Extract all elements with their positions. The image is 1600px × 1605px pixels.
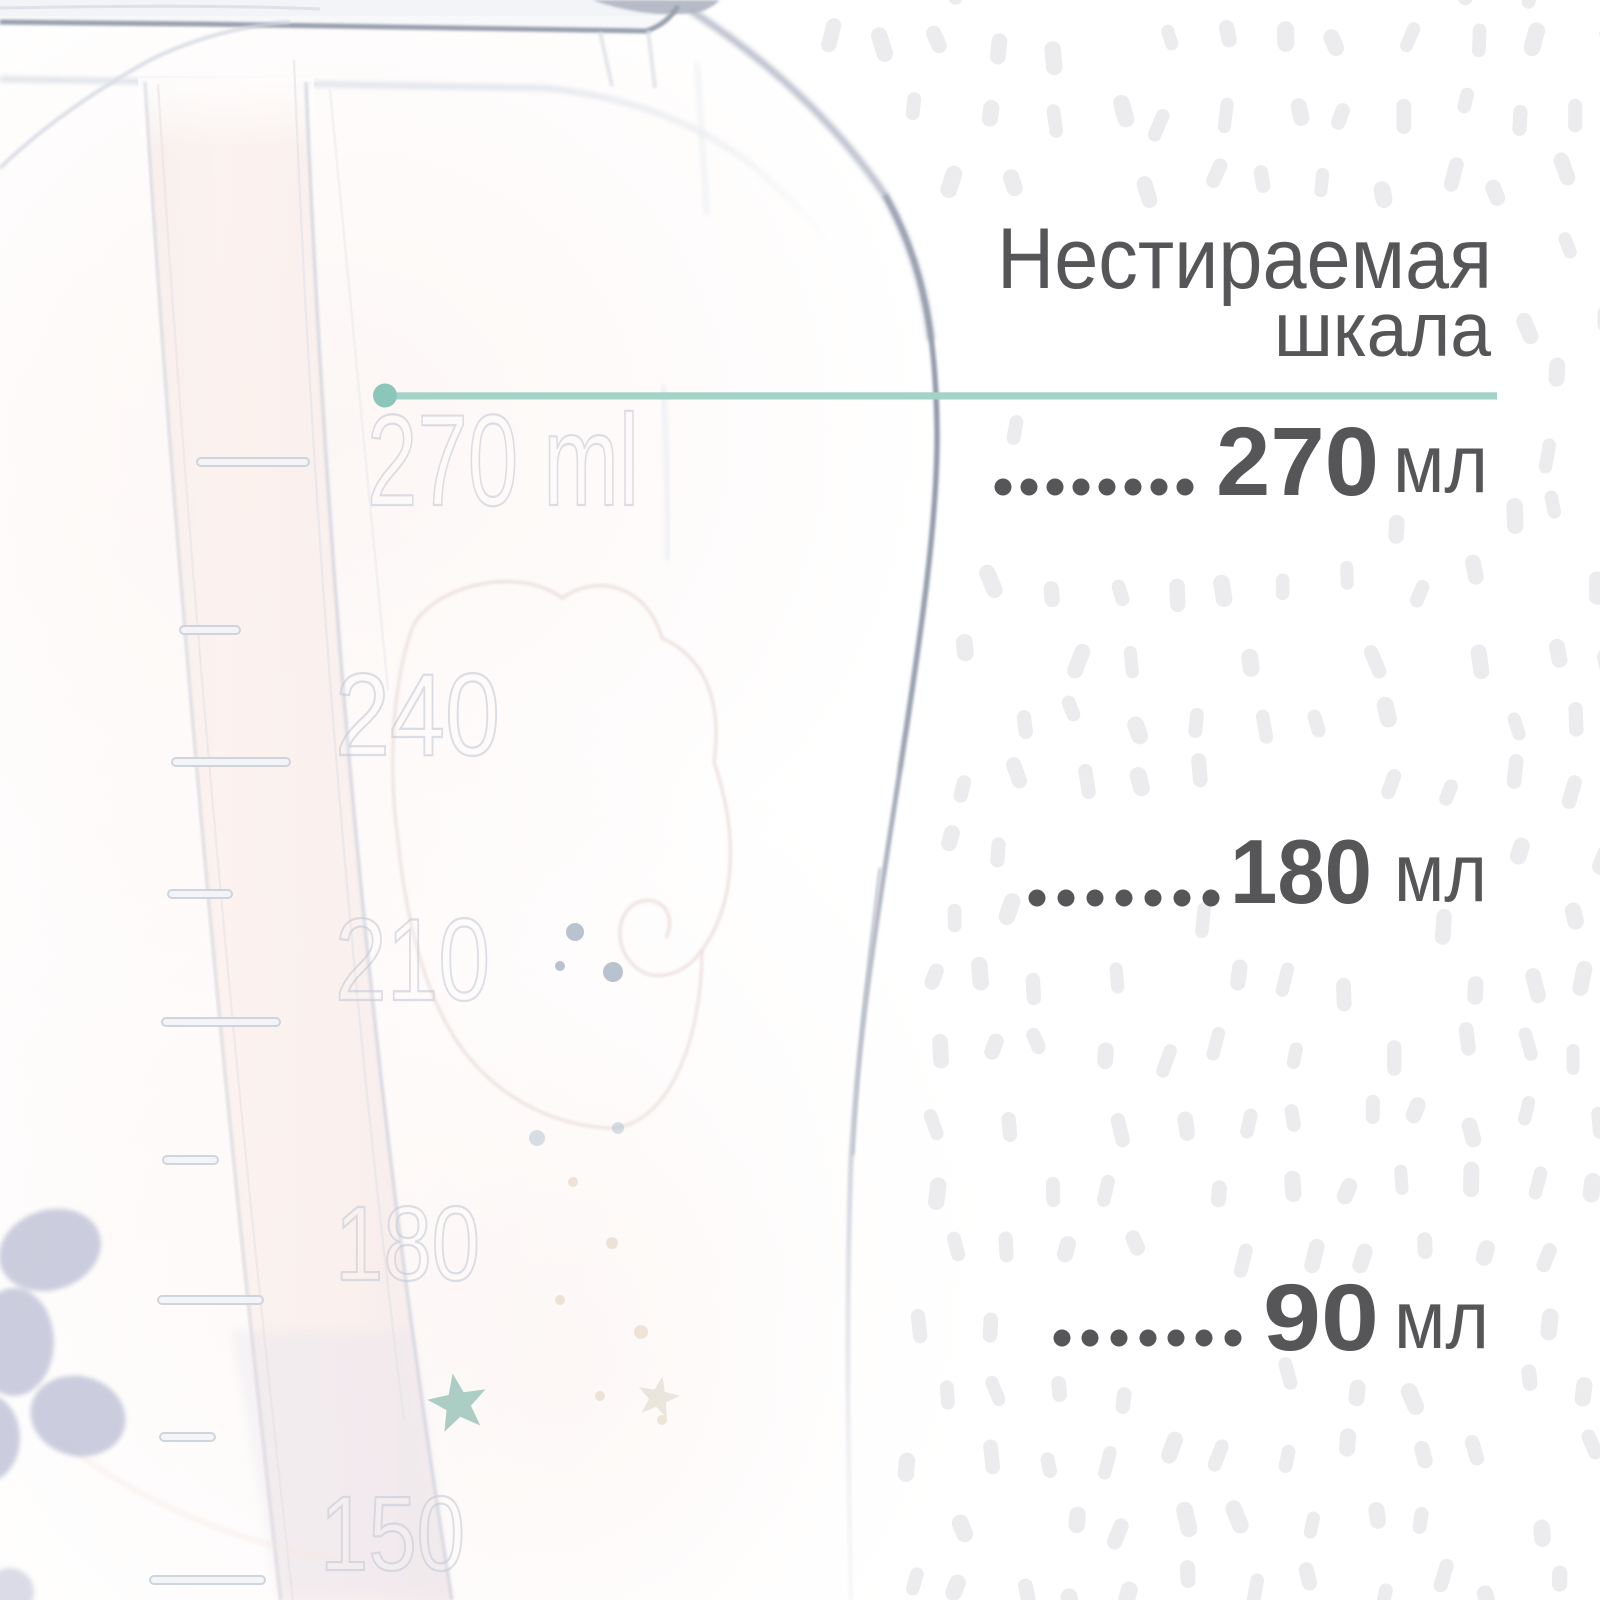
svg-text:240: 240: [335, 649, 500, 780]
svg-text:270 ml: 270 ml: [367, 387, 639, 533]
svg-text:шкала: шкала: [1274, 287, 1491, 373]
svg-text:мл: мл: [1394, 826, 1487, 919]
svg-text:270: 270: [1216, 407, 1379, 516]
svg-text:90: 90: [1263, 1265, 1379, 1371]
svg-text:мл: мл: [1394, 1273, 1489, 1366]
svg-text:150: 150: [320, 1475, 465, 1593]
svg-text:180: 180: [335, 1185, 480, 1303]
svg-text:210: 210: [335, 894, 490, 1025]
svg-text:мл: мл: [1393, 417, 1488, 510]
svg-text:180: 180: [1230, 822, 1372, 923]
